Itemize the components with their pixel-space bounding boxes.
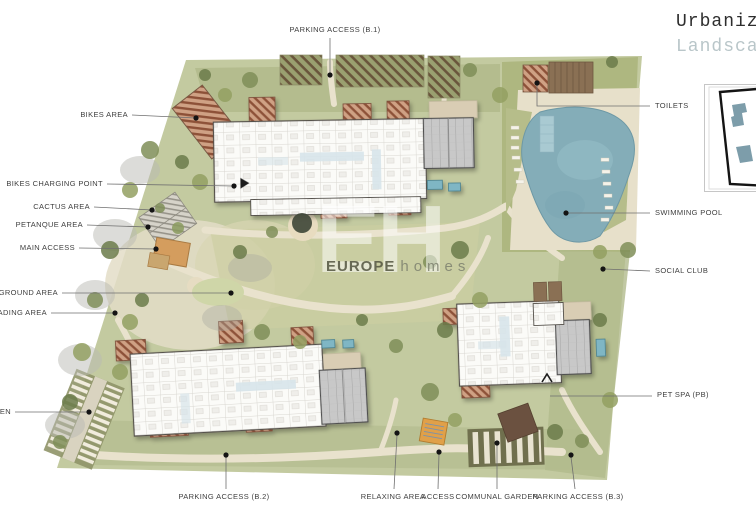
toilets-pergola (523, 62, 593, 93)
page-title: Urbanization (676, 12, 756, 32)
label-parking-access-b3: PARKING ACCESS (B.3) (532, 493, 623, 501)
label-parking-access-b2: PARKING ACCESS (B.2) (178, 493, 269, 501)
label-main-access: MAIN ACCESS (20, 244, 75, 252)
label-relaxing-area: RELAXING AREA (361, 493, 426, 501)
inset-site-outline (720, 88, 756, 186)
label-playground-area: PLAYGROUND AREA (0, 289, 58, 297)
landscaping-masterplan-page: { "title": { "line1": "Urbanization", "l… (0, 0, 756, 528)
label-bikes-charging-point: BIKES CHARGING POINT (6, 180, 103, 188)
label-social-club: SOCIAL CLUB (655, 267, 708, 275)
label-swimming-pool: SWIMMING POOL (655, 209, 722, 217)
inset-map-graphic (705, 85, 756, 191)
swimming-pool-zone (506, 62, 640, 250)
label-bikes-area: BIKES AREA (80, 111, 128, 119)
label-communal-garden: COMMUNAL GARDEN (456, 493, 539, 501)
site-plan-graphic (0, 0, 756, 528)
inset-location-map (704, 84, 756, 192)
playground-lawn (192, 278, 244, 306)
label-garden: GARDEN (0, 408, 11, 416)
label-cactus-area: CACTUS AREA (33, 203, 90, 211)
label-pet-spa: PET SPA (PB) (657, 391, 709, 399)
label-parking-access-b1: PARKING ACCESS (B.1) (289, 26, 380, 34)
label-toilets: TOILETS (655, 102, 689, 110)
page-subtitle: Landscaping (676, 37, 756, 57)
access-hut (419, 418, 448, 445)
title-block: Urbanization Landscaping (676, 12, 756, 57)
label-petanque-area: PETANQUE AREA (16, 221, 83, 229)
label-reading-area: READING AREA (0, 309, 47, 317)
label-access: ACCESS (422, 493, 455, 501)
